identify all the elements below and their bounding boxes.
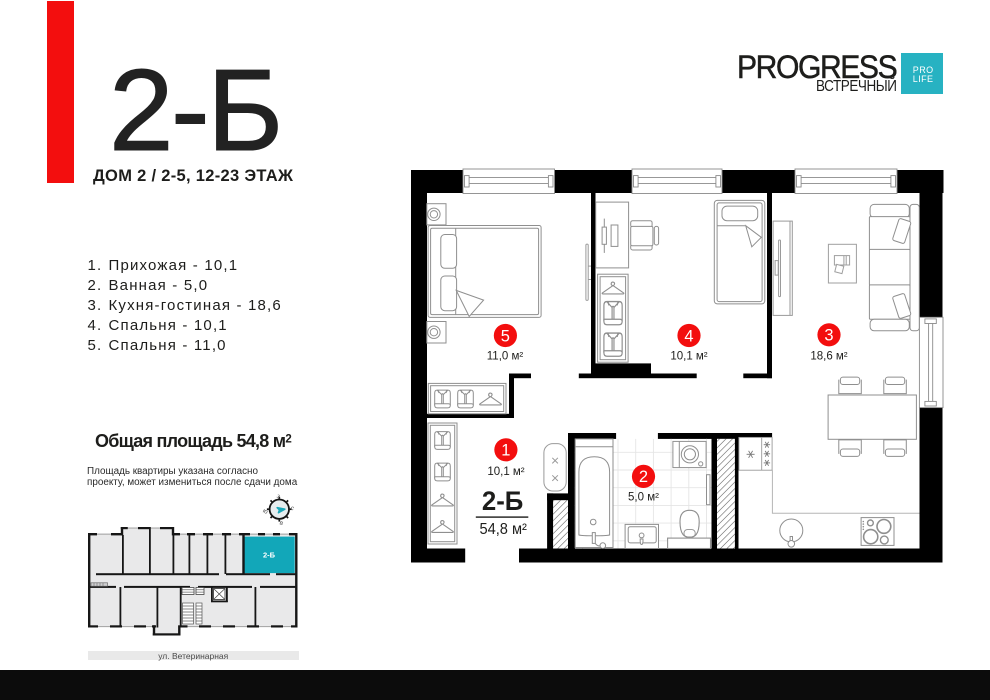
svg-text:1: 1 <box>501 442 510 460</box>
svg-text:3: 3 <box>824 327 833 345</box>
svg-text:5,0 м²: 5,0 м² <box>628 491 659 503</box>
svg-text:2: 2 <box>639 468 648 486</box>
svg-text:4: 4 <box>684 327 693 345</box>
svg-text:18,6 м²: 18,6 м² <box>810 351 847 363</box>
svg-text:10,1 м²: 10,1 м² <box>670 351 707 363</box>
svg-text:54,8 м²: 54,8 м² <box>479 521 527 538</box>
svg-text:10,1 м²: 10,1 м² <box>487 466 524 478</box>
svg-text:11,0 м²: 11,0 м² <box>487 351 524 363</box>
svg-text:2-Б: 2-Б <box>482 486 524 516</box>
svg-text:5: 5 <box>501 327 510 345</box>
